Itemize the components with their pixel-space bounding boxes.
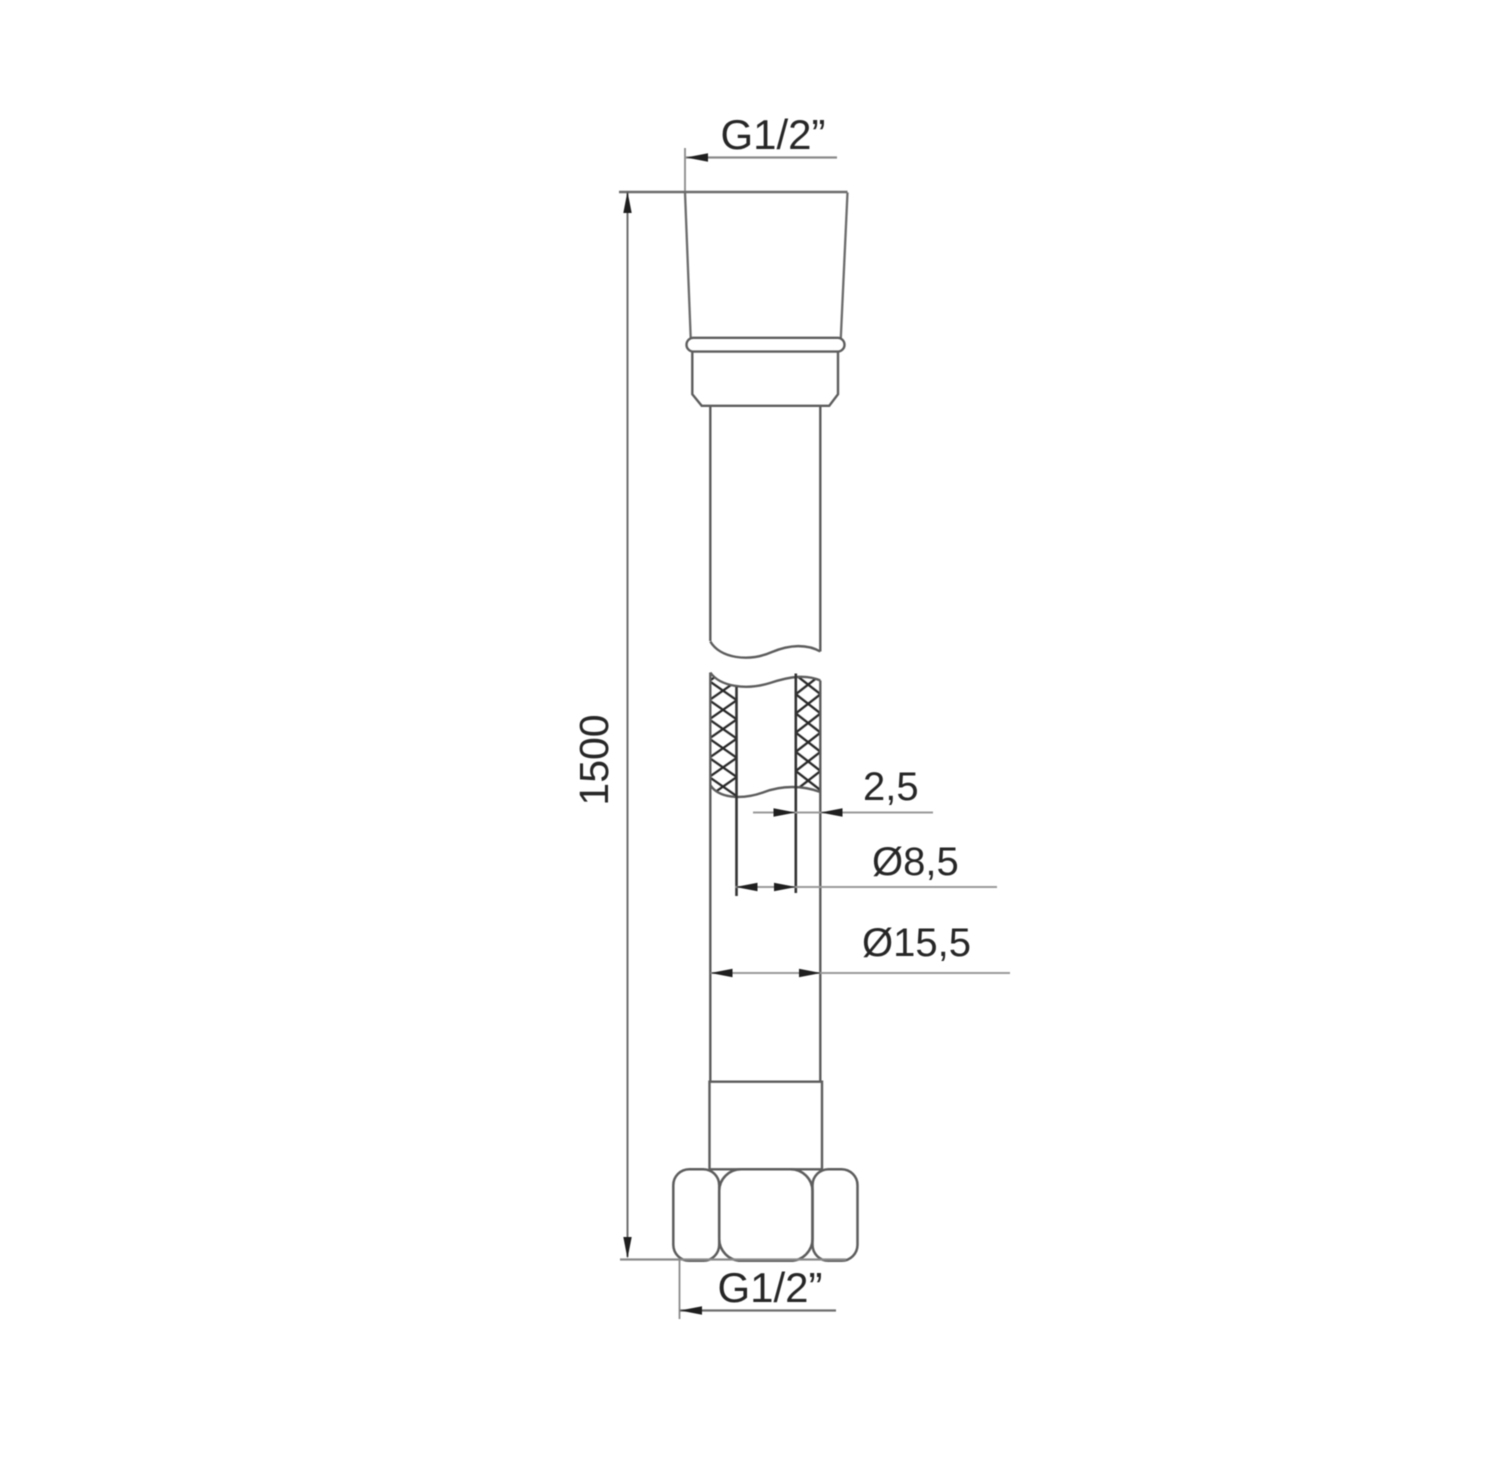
svg-text:1500: 1500 xyxy=(571,714,617,805)
svg-text:G1/2”: G1/2” xyxy=(717,1264,822,1311)
svg-text:Ø15,5: Ø15,5 xyxy=(862,921,971,965)
svg-text:G1/2”: G1/2” xyxy=(720,111,825,158)
svg-text:2,5: 2,5 xyxy=(863,765,919,809)
svg-text:Ø8,5: Ø8,5 xyxy=(872,840,959,884)
